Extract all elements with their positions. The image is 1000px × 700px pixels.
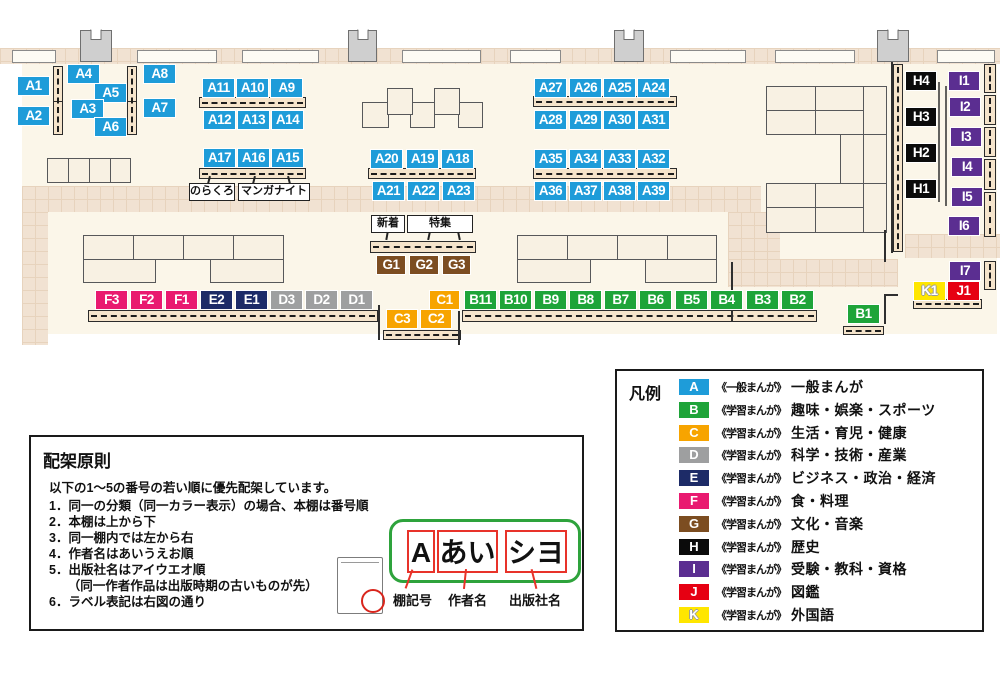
- shelf-label-A19: A19: [406, 149, 439, 169]
- shelf-label-G2: G2: [409, 255, 439, 275]
- legend-row-H: H《学習まんが》歴史: [679, 539, 936, 555]
- author-box: あい: [437, 530, 498, 573]
- shelf-label-H1: H1: [905, 179, 937, 199]
- legend-category: ビジネス・政治・経済: [791, 468, 936, 488]
- shelf-label-D3: D3: [270, 290, 303, 310]
- legend-chip-J: J: [679, 584, 709, 600]
- shelf-label-G1: G1: [376, 255, 406, 275]
- shelf-label-A31: A31: [637, 110, 670, 130]
- shelf-label-F2: F2: [130, 290, 163, 310]
- shelf-label-B6: B6: [639, 290, 672, 310]
- shelf-label-A11: A11: [202, 78, 235, 98]
- legend-series: 《学習まんが》: [716, 584, 786, 600]
- shelf-label-B7: B7: [604, 290, 637, 310]
- shelf-label-A1: A1: [17, 76, 50, 96]
- caption-publisher: 出版社名: [509, 590, 561, 609]
- legend-chip-F: F: [679, 493, 709, 509]
- shelf-label-A17: A17: [203, 148, 236, 168]
- shelf-labels-layer: A1A2A4A5A3A6A8A7A11A10A9A12A13A14A17A16A…: [0, 0, 1000, 360]
- shelf-label-A29: A29: [569, 110, 602, 130]
- legend-category: 文化・音楽: [791, 514, 864, 534]
- shelf-label-I5: I5: [951, 187, 983, 207]
- legend-series: 《学習まんが》: [716, 561, 786, 577]
- legend-row-I: I《学習まんが》受験・教科・資格: [679, 561, 936, 577]
- legend-chip-C: C: [679, 425, 709, 441]
- shelf-label-A28: A28: [534, 110, 567, 130]
- shelf-label-A3: A3: [71, 99, 104, 119]
- legend-row-G: G《学習まんが》文化・音楽: [679, 516, 936, 532]
- principles-panel: 配架原則 以下の1～5の番号の若い順に優先配架しています。 1．同一の分類（同一…: [29, 435, 584, 631]
- library-floor-map-page: のらくろ マンガナイト 新着 特集 A1A2A4A5A3A6A8A7A11A10…: [0, 0, 1000, 700]
- legend-category: 生活・育児・健康: [791, 423, 907, 443]
- legend-chip-I: I: [679, 561, 709, 577]
- legend-series: 《一般まんが》: [716, 379, 786, 395]
- principles-item: 5．出版社名はアイウエオ順: [49, 562, 368, 578]
- shelf-label-B9: B9: [534, 290, 567, 310]
- shelf-label-H4: H4: [905, 71, 937, 91]
- shelf-label-A38: A38: [603, 181, 636, 201]
- shelf-label-C2: C2: [420, 309, 452, 329]
- shelf-label-D1: D1: [340, 290, 373, 310]
- shelf-label-A34: A34: [569, 149, 602, 169]
- legend-row-A: A《一般まんが》一般まんが: [679, 379, 936, 395]
- legend-category: 受験・教科・資格: [791, 559, 907, 579]
- legend-chip-E: E: [679, 470, 709, 486]
- shelf-label-H2: H2: [905, 143, 937, 163]
- legend-category: 食・料理: [791, 491, 849, 511]
- legend-series: 《学習まんが》: [716, 425, 786, 441]
- shelf-label-I1: I1: [948, 71, 980, 91]
- shelf-label-A36: A36: [534, 181, 567, 201]
- shelf-label-A27: A27: [534, 78, 567, 98]
- shelf-label-A22: A22: [407, 181, 440, 201]
- shelf-label-J1: J1: [947, 281, 980, 301]
- legend-category: 趣味・娯楽・スポーツ: [791, 400, 936, 420]
- principles-list: 1．同一の分類（同一カラー表示）の場合、本棚は番号順2．本棚は上から下3．同一棚…: [49, 498, 368, 610]
- shelf-label-B4: B4: [710, 290, 743, 310]
- shelf-label-A20: A20: [370, 149, 403, 169]
- legend-category: 一般まんが: [791, 377, 864, 397]
- shelf-label-F3: F3: [95, 290, 128, 310]
- legend-chip-G: G: [679, 516, 709, 532]
- principles-intro: 以下の1～5の番号の若い順に優先配架しています。: [49, 477, 336, 496]
- shelf-label-A37: A37: [569, 181, 602, 201]
- caption-author: 作者名: [448, 590, 487, 609]
- shelf-label-A8: A8: [143, 64, 176, 84]
- shelf-label-A24: A24: [637, 78, 670, 98]
- legend-category: 科学・技術・産業: [791, 445, 907, 465]
- shelf-label-B1: B1: [847, 304, 880, 324]
- caption-shelf-code: 棚記号: [393, 590, 432, 609]
- legend-chip-B: B: [679, 402, 709, 418]
- shelf-label-A35: A35: [534, 149, 567, 169]
- shelf-label-A32: A32: [637, 149, 670, 169]
- legend-chip-H: H: [679, 539, 709, 555]
- shelf-label-A15: A15: [271, 148, 304, 168]
- shelf-label-A7: A7: [143, 98, 176, 118]
- shelf-label-I6: I6: [948, 216, 980, 236]
- shelf-label-I7: I7: [949, 261, 981, 281]
- shelf-label-B2: B2: [781, 290, 814, 310]
- legend-row-F: F《学習まんが》食・料理: [679, 493, 936, 509]
- shelf-label-A6: A6: [94, 117, 127, 137]
- legend-category: 図鑑: [791, 582, 820, 602]
- legend-row-D: D《学習まんが》科学・技術・産業: [679, 447, 936, 463]
- shelf-label-A12: A12: [203, 110, 236, 130]
- legend-series: 《学習まんが》: [716, 516, 786, 532]
- shelf-label-B3: B3: [746, 290, 779, 310]
- legend-series: 《学習まんが》: [716, 539, 786, 555]
- legend-panel: 凡例 A《一般まんが》一般まんがB《学習まんが》趣味・娯楽・スポーツC《学習まん…: [615, 369, 984, 632]
- legend-category: 外国語: [791, 605, 835, 625]
- shelf-label-A23: A23: [442, 181, 475, 201]
- shelf-label-I4: I4: [951, 157, 983, 177]
- shelf-label-A2: A2: [17, 106, 50, 126]
- shelf-label-C1: C1: [429, 290, 460, 310]
- legend-row-B: B《学習まんが》趣味・娯楽・スポーツ: [679, 402, 936, 418]
- legend-chip-K: K: [679, 607, 709, 623]
- floor-map: のらくろ マンガナイト 新着 特集 A1A2A4A5A3A6A8A7A11A10…: [0, 0, 1000, 360]
- shelf-label-B11: B11: [464, 290, 497, 310]
- legend-series: 《学習まんが》: [716, 402, 786, 418]
- shelf-label-I2: I2: [949, 97, 981, 117]
- shelf-label-K1: K1: [913, 281, 946, 301]
- legend-row-K: K《学習まんが》外国語: [679, 607, 936, 623]
- shelf-code-box: A: [407, 530, 435, 573]
- legend-series: 《学習まんが》: [716, 447, 786, 463]
- shelf-label-A13: A13: [237, 110, 270, 130]
- legend-category: 歴史: [791, 537, 820, 557]
- legend-row-C: C《学習まんが》生活・育児・健康: [679, 425, 936, 441]
- shelf-label-B8: B8: [569, 290, 602, 310]
- shelf-label-B10: B10: [499, 290, 532, 310]
- principles-title: 配架原則: [43, 447, 111, 472]
- shelf-label-A26: A26: [569, 78, 602, 98]
- legend-series: 《学習まんが》: [716, 493, 786, 509]
- shelf-label-B5: B5: [675, 290, 708, 310]
- principles-item: （同一作者作品は出版時期の古いものが先）: [49, 578, 368, 594]
- principles-item: 1．同一の分類（同一カラー表示）の場合、本棚は番号順: [49, 498, 368, 514]
- shelf-label-A16: A16: [237, 148, 270, 168]
- shelf-label-A21: A21: [372, 181, 405, 201]
- legend-series: 《学習まんが》: [716, 607, 786, 623]
- legend-series: 《学習まんが》: [716, 470, 786, 486]
- legend-chip-D: D: [679, 447, 709, 463]
- principles-item: 3．同一棚内では左から右: [49, 530, 368, 546]
- shelf-label-D2: D2: [305, 290, 338, 310]
- principles-item: 2．本棚は上から下: [49, 514, 368, 530]
- shelf-label-A18: A18: [441, 149, 474, 169]
- shelf-label-A30: A30: [603, 110, 636, 130]
- shelf-label-C3: C3: [386, 309, 418, 329]
- shelf-label-A9: A9: [270, 78, 303, 98]
- legend-title: 凡例: [629, 380, 661, 404]
- legend-row-J: J《学習まんが》図鑑: [679, 584, 936, 600]
- shelf-label-A25: A25: [603, 78, 636, 98]
- shelf-label-G3: G3: [442, 255, 471, 275]
- shelf-label-A4: A4: [67, 64, 100, 84]
- shelf-label-E1: E1: [235, 290, 268, 310]
- shelf-label-H3: H3: [905, 107, 937, 127]
- legend-rows: A《一般まんが》一般まんがB《学習まんが》趣味・娯楽・スポーツC《学習まんが》生…: [679, 379, 936, 630]
- shelf-label-A39: A39: [637, 181, 670, 201]
- shelf-label-F1: F1: [165, 290, 198, 310]
- shelf-label-A10: A10: [236, 78, 269, 98]
- spine-label-diagram: A あい シヨ: [389, 519, 581, 583]
- shelf-label-A33: A33: [603, 149, 636, 169]
- principles-item: 6．ラベル表記は右図の通り: [49, 594, 368, 610]
- label-position-circle: [361, 589, 385, 613]
- shelf-label-I3: I3: [950, 127, 982, 147]
- principles-item: 4．作者名はあいうえお順: [49, 546, 368, 562]
- legend-row-E: E《学習まんが》ビジネス・政治・経済: [679, 470, 936, 486]
- publisher-box: シヨ: [505, 530, 567, 573]
- legend-chip-A: A: [679, 379, 709, 395]
- shelf-label-E2: E2: [200, 290, 233, 310]
- shelf-label-A14: A14: [271, 110, 304, 130]
